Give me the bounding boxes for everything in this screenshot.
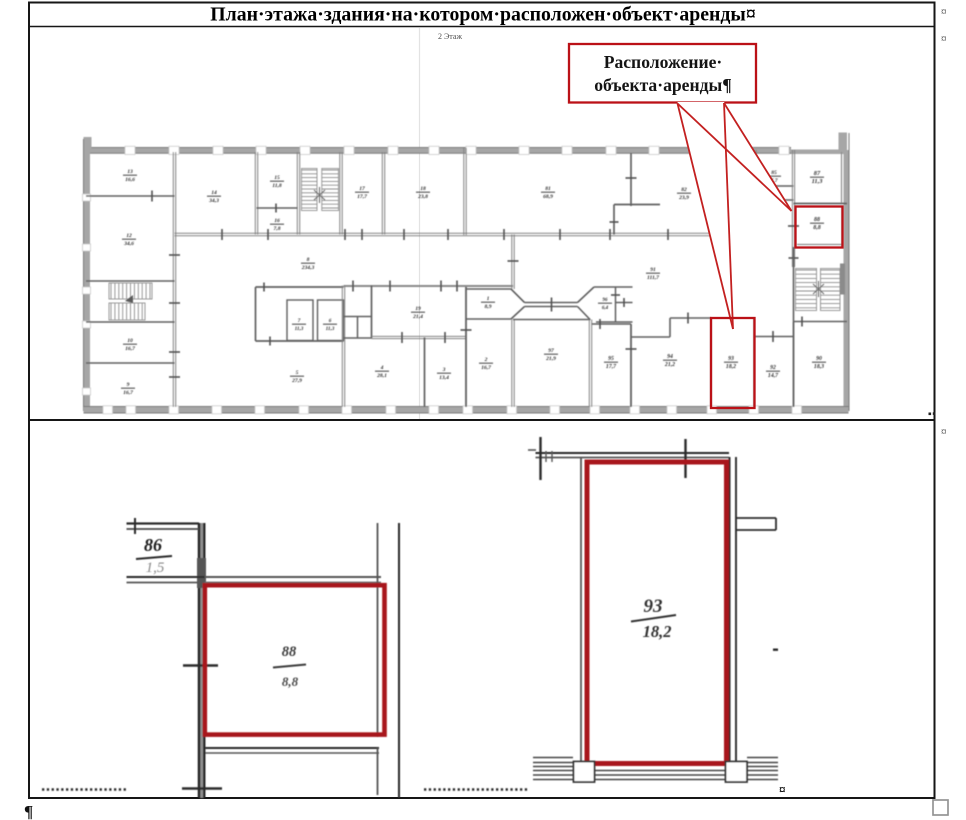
svg-text:96: 96 <box>603 298 609 303</box>
svg-text:17: 17 <box>359 186 365 192</box>
svg-text:12: 12 <box>126 233 132 239</box>
svg-text:¤: ¤ <box>779 782 786 797</box>
svg-text:11,3: 11,3 <box>326 326 335 332</box>
svg-text:18,2: 18,2 <box>643 622 672 641</box>
svg-text:3: 3 <box>442 367 446 373</box>
svg-text:11,3: 11,3 <box>812 178 824 185</box>
svg-text:18,3: 18,3 <box>814 364 824 370</box>
svg-text:87: 87 <box>814 170 821 177</box>
svg-text:34,6: 34,6 <box>123 241 134 247</box>
svg-text:1,5: 1,5 <box>146 560 165 576</box>
svg-text:13,4: 13,4 <box>439 375 449 381</box>
svg-text:10: 10 <box>127 338 133 344</box>
svg-text:82: 82 <box>681 187 687 193</box>
svg-text:6,4: 6,4 <box>602 306 609 311</box>
svg-text:План·этажа·здания·на·котором·р: План·этажа·здания·на·котором·расположен·… <box>210 4 756 26</box>
svg-text:6: 6 <box>329 318 332 324</box>
svg-text:91: 91 <box>650 267 656 273</box>
svg-text:90: 90 <box>816 356 822 362</box>
svg-text:19: 19 <box>415 306 421 312</box>
svg-text:8,8: 8,8 <box>813 225 821 231</box>
svg-text:21,9: 21,9 <box>545 356 556 362</box>
svg-text:88: 88 <box>814 217 820 223</box>
svg-text:16,6: 16,6 <box>125 177 135 183</box>
svg-text:88: 88 <box>282 644 297 660</box>
svg-text:28,1: 28,1 <box>376 373 387 379</box>
svg-text:68,9: 68,9 <box>543 194 553 200</box>
svg-text:11,3: 11,3 <box>295 326 304 332</box>
svg-text:81: 81 <box>545 186 551 192</box>
svg-text:Расположение·: Расположение· <box>604 52 723 72</box>
svg-text:5: 5 <box>296 370 299 376</box>
svg-text:8,9: 8,9 <box>485 304 492 310</box>
svg-text:7,8: 7,8 <box>274 226 281 232</box>
svg-text:7: 7 <box>298 318 301 324</box>
svg-text:34,3: 34,3 <box>208 198 219 204</box>
svg-text:16,7: 16,7 <box>123 390 133 396</box>
svg-text:11,8: 11,8 <box>272 183 282 189</box>
svg-text:17,7: 17,7 <box>606 364 617 370</box>
svg-text:¤: ¤ <box>941 6 947 18</box>
svg-text:16,7: 16,7 <box>481 365 491 371</box>
svg-text:4: 4 <box>380 365 384 371</box>
svg-text:94: 94 <box>667 354 673 360</box>
svg-text:23,9: 23,9 <box>678 195 689 201</box>
svg-text:15: 15 <box>274 175 280 181</box>
svg-text:93: 93 <box>728 356 734 362</box>
svg-text:97: 97 <box>548 348 554 354</box>
svg-text:объекта·аренды¶: объекта·аренды¶ <box>594 75 732 95</box>
svg-text:9: 9 <box>127 382 130 388</box>
svg-text:111,7: 111,7 <box>647 275 659 281</box>
svg-text:85: 85 <box>771 170 777 176</box>
svg-text:234,3: 234,3 <box>301 265 315 271</box>
svg-text:93: 93 <box>644 596 663 617</box>
svg-text:1: 1 <box>487 296 490 302</box>
svg-text:21,2: 21,2 <box>664 362 675 368</box>
svg-text:2 Этаж: 2 Этаж <box>438 32 462 41</box>
svg-text:18,2: 18,2 <box>726 364 736 370</box>
svg-text:86: 86 <box>144 535 162 555</box>
svg-text:13: 13 <box>127 169 133 175</box>
svg-text:21,4: 21,4 <box>412 314 423 320</box>
svg-text:92: 92 <box>770 365 776 371</box>
svg-text:95: 95 <box>608 356 614 362</box>
svg-text:8,8: 8,8 <box>282 674 299 689</box>
svg-text:23,8: 23,8 <box>417 194 428 200</box>
svg-text:8: 8 <box>307 257 310 263</box>
svg-text:¤: ¤ <box>941 426 947 438</box>
svg-text:2: 2 <box>484 357 488 363</box>
svg-text:14,7: 14,7 <box>768 373 779 379</box>
svg-text:16,7: 16,7 <box>125 346 135 352</box>
svg-text:¶: ¶ <box>24 802 33 820</box>
svg-text:27,9: 27,9 <box>291 378 302 384</box>
svg-text:16: 16 <box>274 218 280 224</box>
svg-text:14: 14 <box>211 190 217 196</box>
svg-text:¤: ¤ <box>941 33 947 45</box>
svg-text:18: 18 <box>420 186 426 192</box>
svg-text:17,7: 17,7 <box>357 194 367 200</box>
